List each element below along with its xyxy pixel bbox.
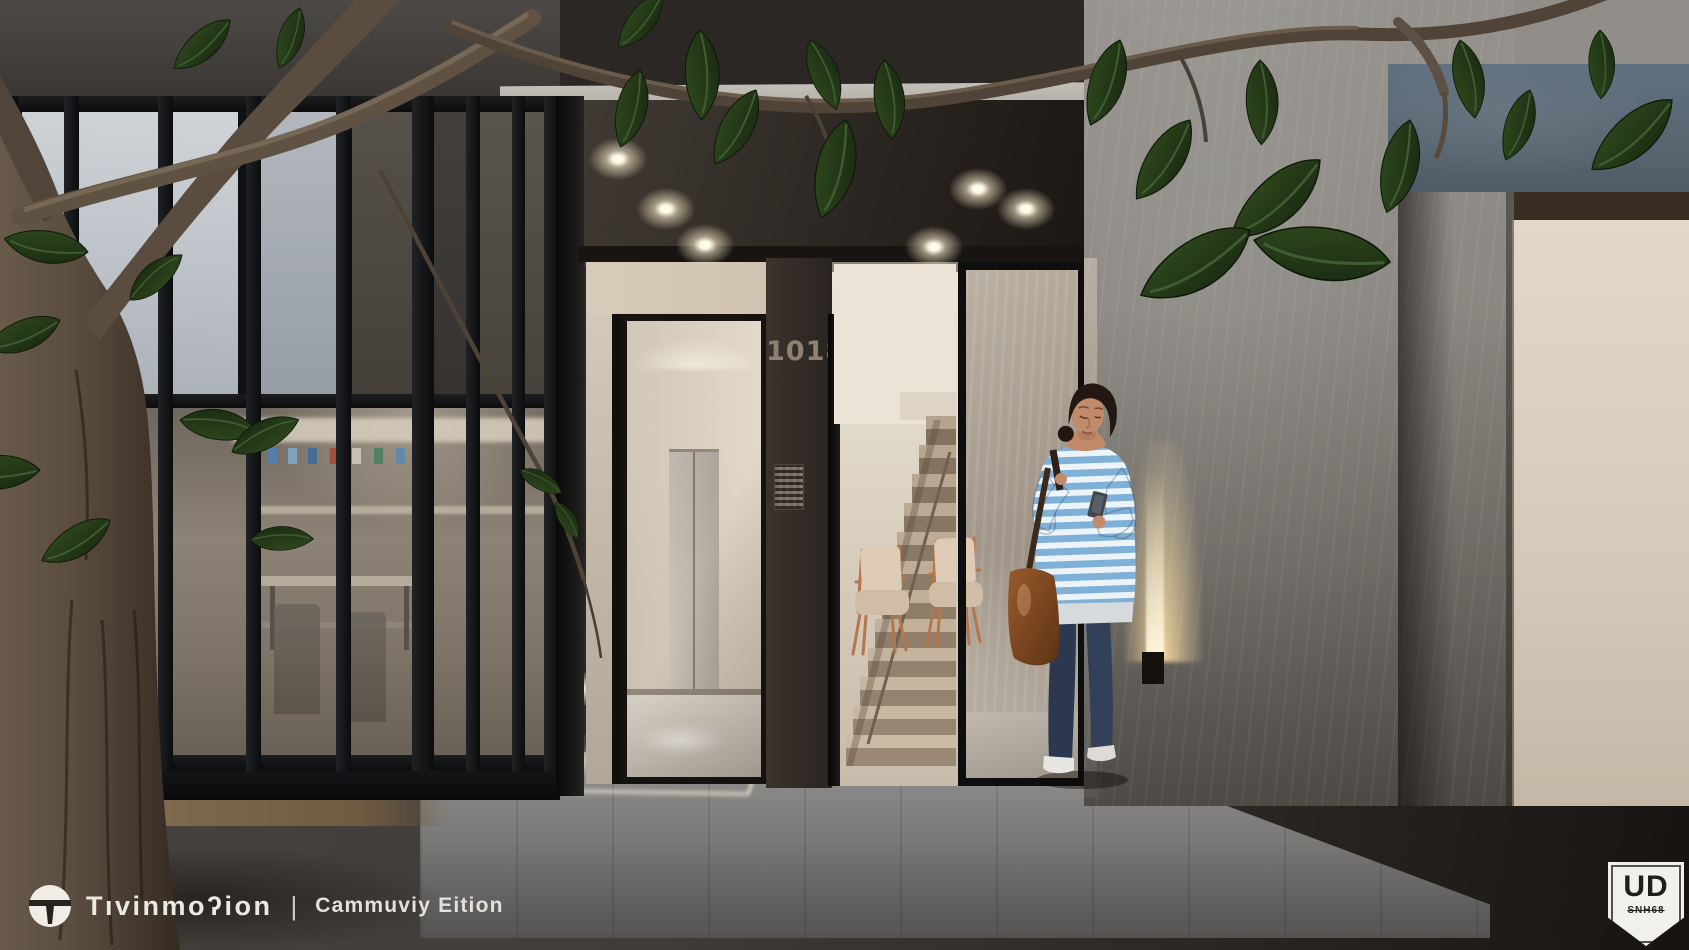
storefront-mullion [512,96,525,771]
door-head-frame [578,246,1088,262]
table-leg [404,586,409,650]
ceiling-downlight [673,222,737,268]
store-product [352,448,361,464]
storefront-mullion [158,96,173,771]
door-glass-reflection [627,321,761,777]
intercom-panel [774,464,804,510]
glass-sheen [966,270,1078,778]
badge-subtitle: SNH68 [1627,905,1664,916]
cream-wall [1512,220,1689,806]
storefront-base [0,771,560,800]
store-product [268,448,277,464]
storefront-mullion [336,96,351,771]
store-product [288,448,297,464]
door-frame-post [612,314,620,784]
wall-sconce-beam-core [1146,470,1164,656]
wall-seam [1506,192,1514,806]
watermark-logo-text: Tıvinmoʔion [86,891,273,922]
storefront-mullion [64,96,79,771]
store-product [308,448,317,464]
store-product [374,448,383,464]
ceiling-downlight [586,136,650,182]
sidelight-glass-right [958,262,1086,786]
ceiling-downlight [994,186,1058,232]
storefront-mullion [466,96,480,771]
twinmotion-watermark: Tıvinmoʔion | Cammuviy Eition [28,884,504,928]
wall-corner-highlight [1084,258,1097,798]
badge-title: UD [1623,872,1668,902]
storefront-glazing [0,96,560,800]
glass-entry-door [620,314,768,784]
open-door-edge [828,314,840,786]
storefront-glass-pane [252,112,338,394]
watermark-edition-text: Cammuviy Eition [315,894,503,918]
sidelight-glass [586,314,612,784]
twinmotion-logo-icon [28,884,72,928]
entrance-pillar: 1018 [766,258,832,788]
storefront-glass-pane [352,112,412,394]
store-chair-silhouette [274,604,320,714]
wall-sconce-fixture [1142,652,1164,684]
open-doorway-interior [832,262,958,786]
bronze-base-trim [0,800,452,826]
store-shelf [232,418,548,442]
architectural-render: 1018 [0,0,1689,950]
ceiling-downlight [902,224,966,270]
dark-trim-band [1514,192,1689,220]
storefront-mullion [246,96,261,771]
door-number: 1018 [766,336,832,367]
storefront-glass-pane [22,112,238,394]
store-shelf [252,506,548,514]
watermark-separator: | [291,891,298,922]
vestibule-side-wall [556,96,584,796]
blue-accent-band [1388,64,1689,192]
store-product [396,448,405,464]
concrete-soffit [0,0,560,96]
storefront-mullion [412,96,434,771]
storefront-mullion [0,96,18,771]
